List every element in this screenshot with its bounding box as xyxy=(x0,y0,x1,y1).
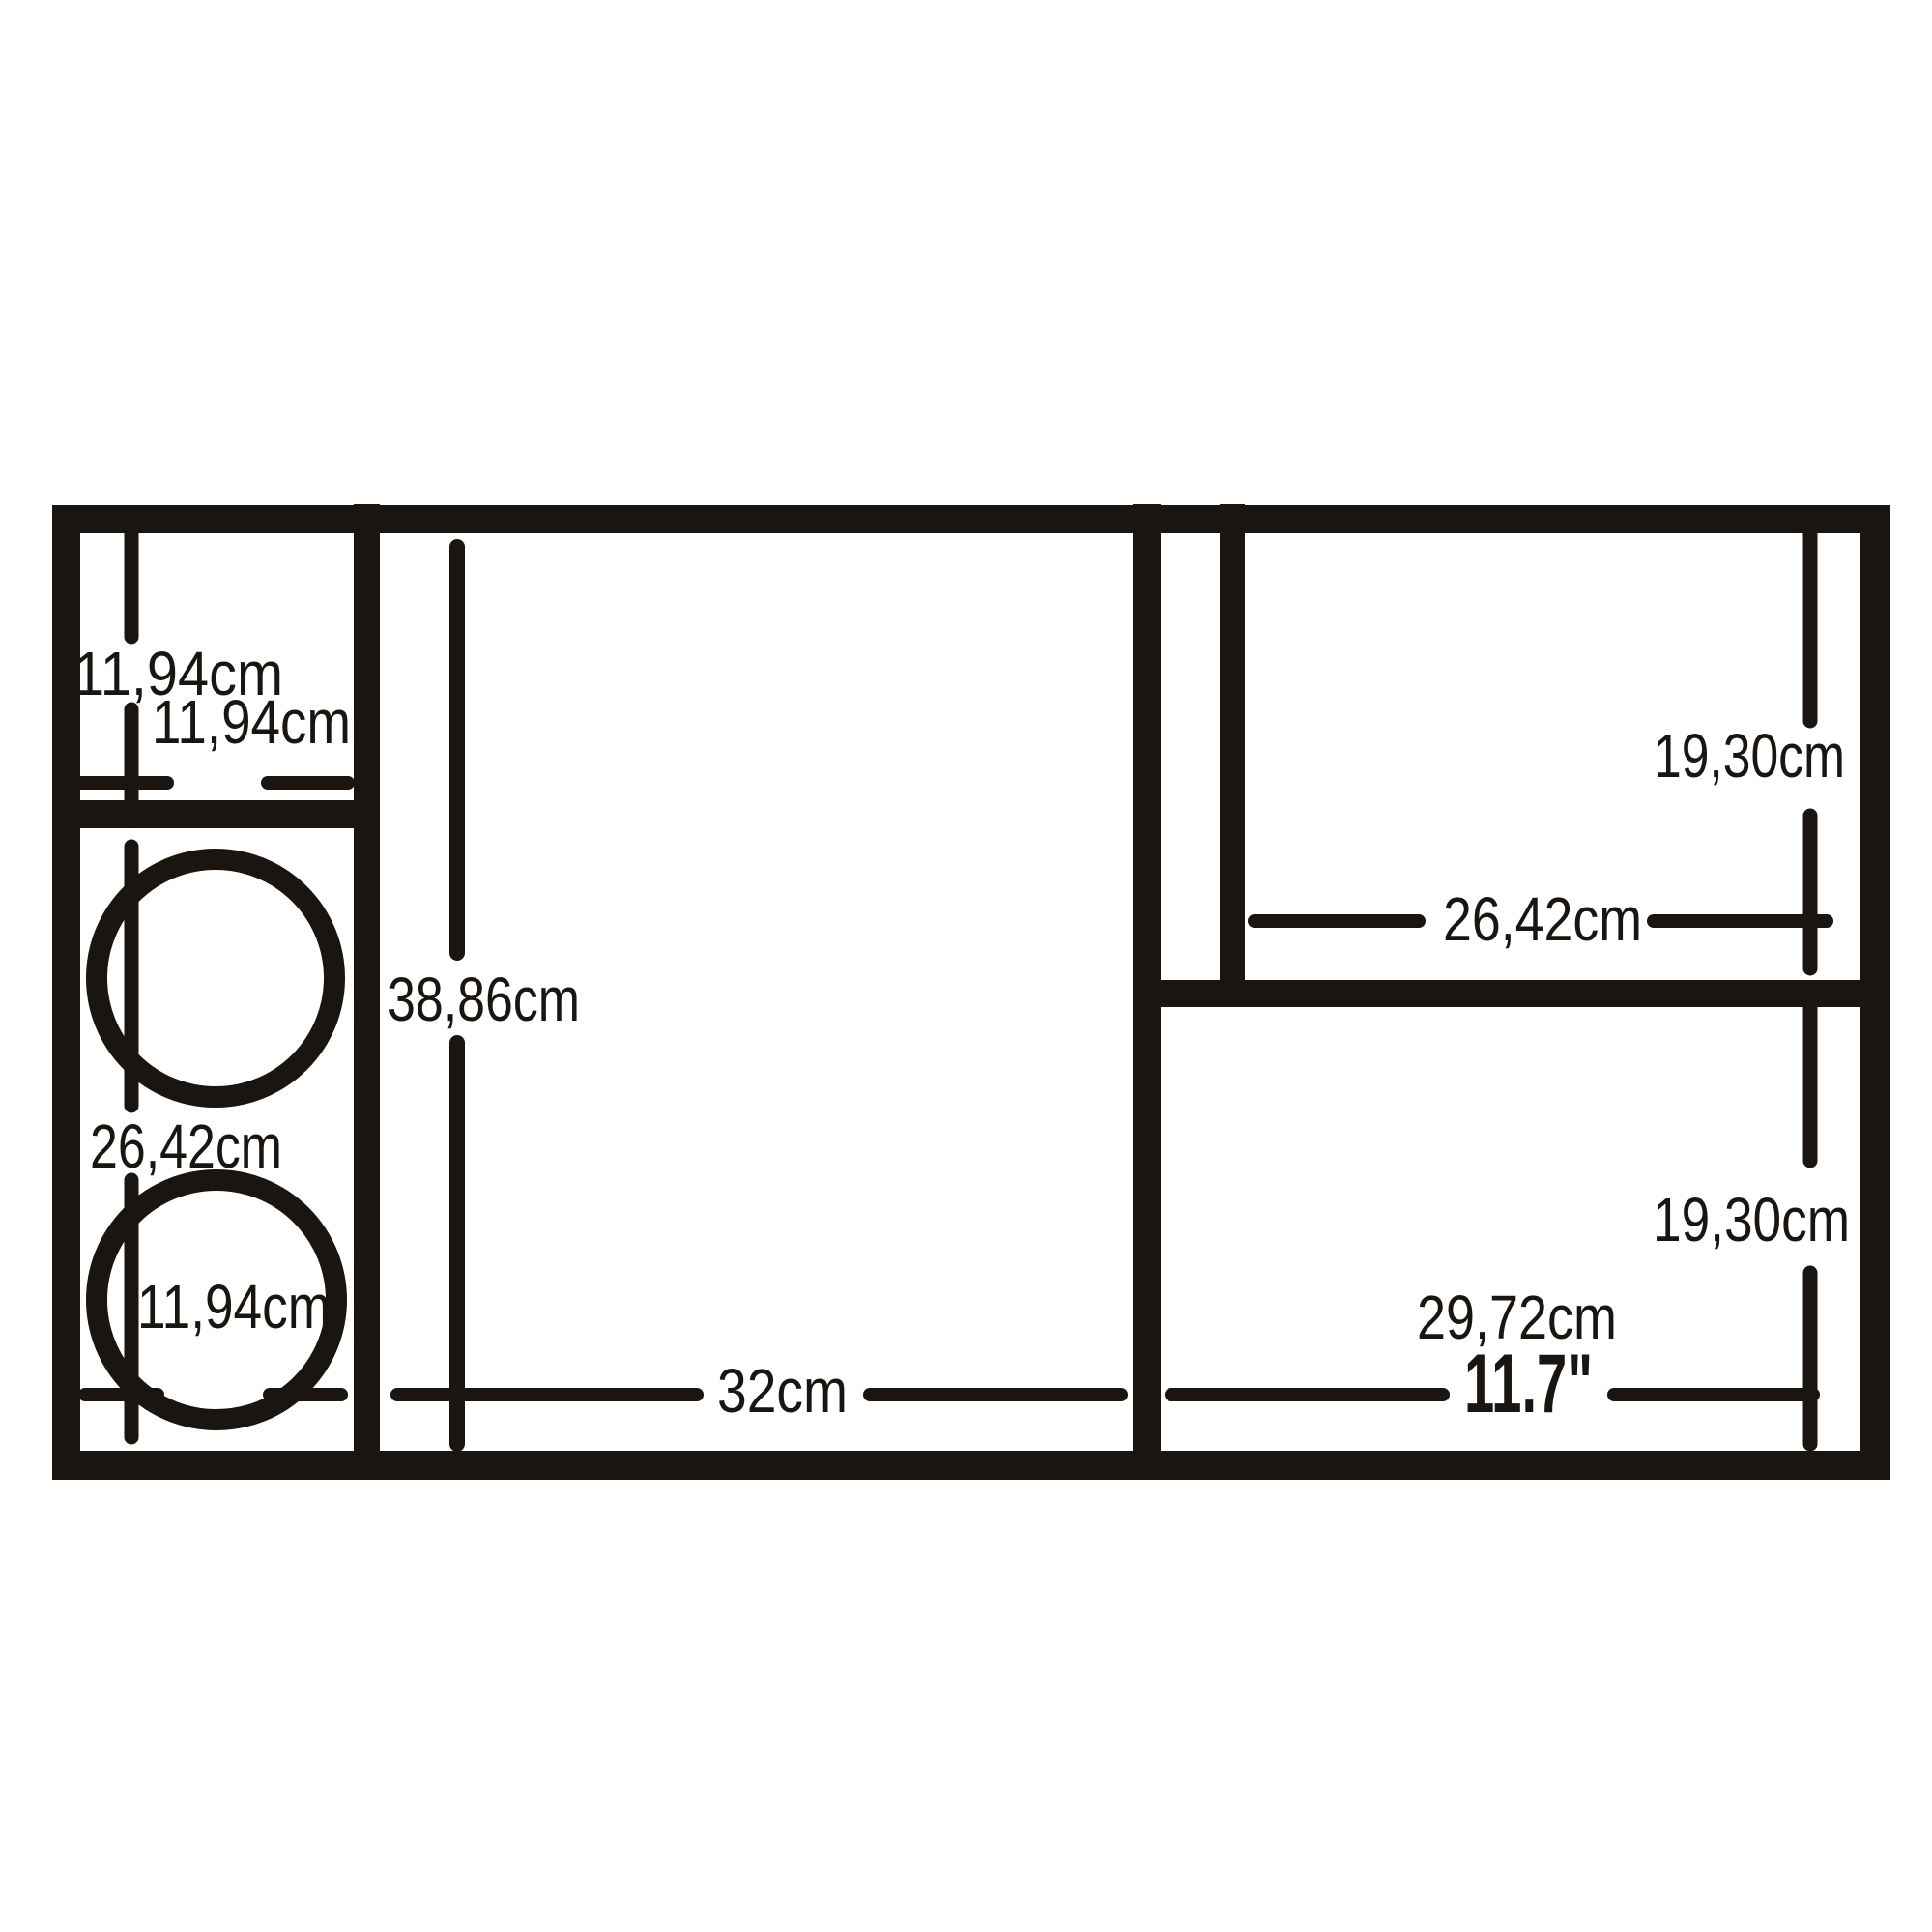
svg-text:11.7": 11.7" xyxy=(1464,1338,1593,1430)
svg-text:32cm: 32cm xyxy=(717,1356,848,1426)
svg-text:19,30cm: 19,30cm xyxy=(1653,1185,1850,1254)
svg-text:11,94cm: 11,94cm xyxy=(137,1272,331,1341)
svg-text:26,42cm: 26,42cm xyxy=(1443,884,1642,954)
svg-text:19,30cm: 19,30cm xyxy=(1654,721,1845,791)
svg-text:11,94cm: 11,94cm xyxy=(152,687,351,757)
svg-text:26,42cm: 26,42cm xyxy=(90,1111,282,1181)
svg-text:38,86cm: 38,86cm xyxy=(388,965,580,1034)
